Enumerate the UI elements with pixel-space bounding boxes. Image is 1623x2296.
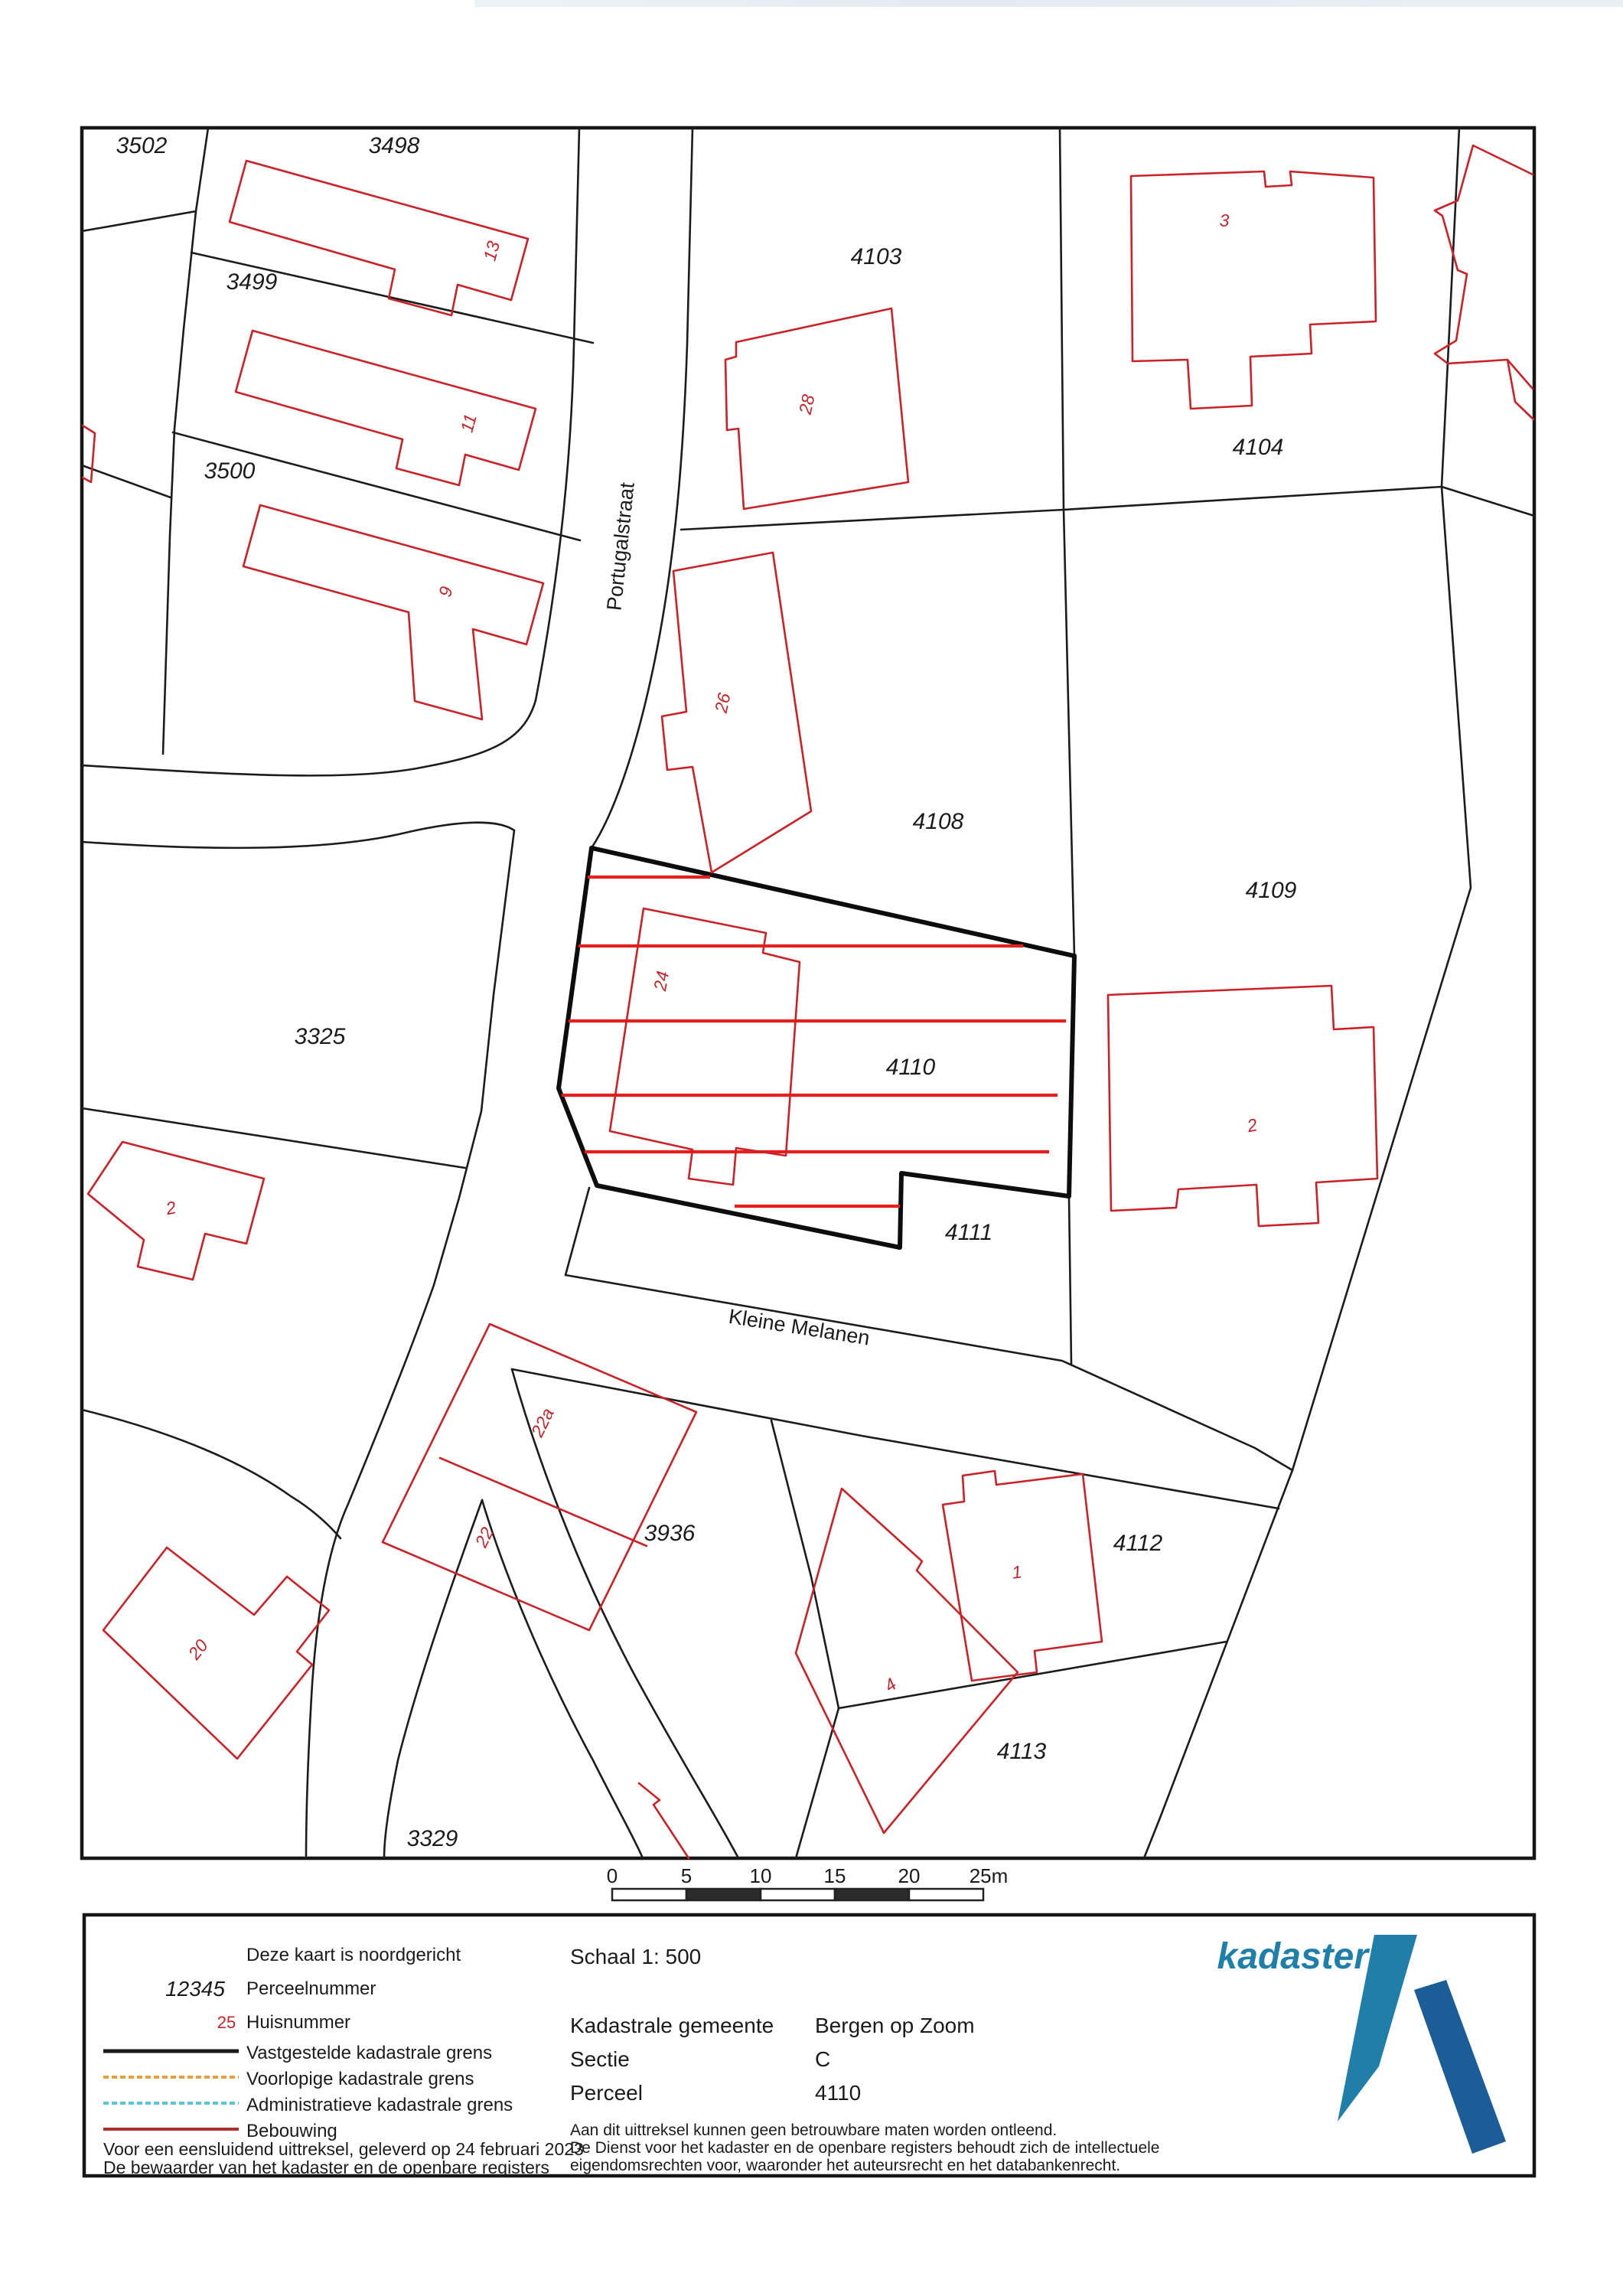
boundary-line [1144, 1470, 1292, 1858]
building-outline-22a-22 [383, 1324, 696, 1630]
field-label-perceel: Perceel [570, 2081, 643, 2105]
footer-line-2: De bewaarder van het kadaster en de open… [103, 2157, 549, 2177]
kadaster-logo: kadaster [1217, 1935, 1506, 2154]
selected-parcel-outline-4110 [559, 848, 1074, 1247]
parcel-label-4109: 4109 [1246, 878, 1297, 903]
house-number-11: 11 [457, 412, 481, 435]
road-edge-portugalstraat-west [536, 128, 579, 700]
legend-house-label: Huisnummer [246, 2012, 350, 2033]
boundary-line [1060, 128, 1064, 510]
field-value-sectie: C [815, 2047, 830, 2071]
extract-details: Schaal 1: 500 Kadastrale gemeente Bergen… [570, 1945, 1159, 2174]
cadastral-map-sheet: 3502 3498 3499 3500 4103 4104 3325 4108 … [0, 0, 1623, 2296]
house-number-2-east: 2 [1244, 1114, 1259, 1136]
scale-tick-0: 0 [607, 1864, 618, 1887]
parcel-label-3500: 3500 [204, 458, 256, 484]
parcel-label-4103: 4103 [851, 244, 902, 269]
boundary-line [173, 432, 580, 540]
scale-bar: 0 5 10 15 20 25m [607, 1864, 1009, 1900]
house-number-24: 24 [650, 970, 673, 993]
boundary-line [681, 510, 1064, 530]
building-outline-28 [725, 308, 908, 509]
house-number-9: 9 [435, 584, 456, 598]
kadaster-extract-page: { "map": { "parcel_labels": [ {"text":"3… [0, 0, 1623, 2296]
building-outline-11 [236, 331, 536, 485]
parcel-label-3498: 3498 [369, 133, 420, 158]
house-number-28: 28 [795, 393, 819, 417]
road-edge [384, 1500, 482, 1858]
kadaster-wordmark: kadaster [1217, 1936, 1370, 1977]
building-outline-irregular [1435, 145, 1533, 419]
house-number-2-west: 2 [163, 1197, 178, 1218]
boundary-line [1064, 510, 1074, 956]
field-value-kadastrale-gemeente: Bergen op Zoom [815, 2014, 975, 2037]
boundary-line [839, 1642, 1227, 1708]
house-number-4: 4 [881, 1674, 900, 1696]
scale-tick-10: 10 [750, 1864, 772, 1887]
road-edge [482, 1500, 643, 1858]
scale-segment [761, 1889, 835, 1900]
boundary-line [82, 211, 196, 231]
boundary-line [565, 1188, 589, 1275]
parcel-label-4112: 4112 [1113, 1531, 1163, 1556]
boundary-line [82, 1410, 341, 1538]
field-label-kadastrale-gemeente: Kadastrale gemeente [570, 2014, 774, 2037]
building-outline-3 [1131, 171, 1376, 409]
building-outline-24 [610, 908, 800, 1185]
boundary-line [82, 465, 171, 497]
parcel-label-3502: 3502 [116, 133, 168, 158]
building-outline-9 [243, 505, 543, 719]
map-labels: 3502 3498 3499 3500 4103 4104 3325 4108 … [116, 133, 1297, 1851]
road-edge-north [82, 700, 536, 775]
parcel-label-4110: 4110 [886, 1055, 936, 1080]
legend-line-building-label: Bebouwing [246, 2121, 337, 2141]
house-number-13: 13 [479, 239, 504, 263]
scale-segment [909, 1889, 983, 1900]
boundary-line [1442, 487, 1534, 516]
road-edge-portugalstraat-east [592, 128, 693, 848]
scale-tick-25m: 25m [970, 1864, 1009, 1887]
boundary-line [1069, 1196, 1071, 1364]
map-frame [82, 128, 1534, 1858]
parcel-label-3325: 3325 [295, 1024, 346, 1049]
parcel-label-3499: 3499 [227, 269, 278, 295]
disclaimer-line-3: eigendomsrechten voor, waaronder het aut… [570, 2157, 1120, 2174]
house-number-1: 1 [1011, 1561, 1023, 1583]
parcel-label-4113: 4113 [997, 1739, 1047, 1764]
scale-segment [686, 1889, 761, 1900]
boundary-line [1442, 128, 1459, 487]
boundary-line [1064, 487, 1442, 510]
building-outline-2-east [1108, 986, 1377, 1226]
scale-segment [612, 1889, 686, 1900]
legend: Deze kaart is noordgericht 12345 Perceel… [103, 1945, 584, 2177]
schaal-text: Schaal 1: 500 [570, 1945, 701, 1968]
field-label-sectie: Sectie [570, 2047, 630, 2071]
disclaimer-line-2: De Dienst voor het kadaster en de openba… [570, 2139, 1159, 2157]
building-outline-fragment [83, 426, 95, 482]
house-number-3: 3 [1220, 210, 1230, 230]
boundary-line [771, 1420, 839, 1708]
boundary-line [191, 253, 593, 343]
parcel-label-4104: 4104 [1233, 435, 1284, 460]
scale-tick-20: 20 [898, 1864, 921, 1887]
selected-parcel-hatching [562, 877, 1066, 1206]
road-edge-kleine-melanen-south [512, 1369, 1279, 1508]
road-edge-diagonal-west [306, 830, 514, 1858]
parcel-boundaries [82, 128, 1534, 1858]
street-label-portugalstraat: Portugalstraat [602, 481, 638, 612]
legend-line-fixed-label: Vastgestelde kadastrale grens [246, 2043, 492, 2063]
parcel-label-3329: 3329 [407, 1826, 458, 1851]
scale-tick-15: 15 [824, 1864, 846, 1887]
road-edge-kleine-melanen-north [565, 1275, 1292, 1470]
legend-line-administrative-label: Administratieve kadastrale grens [246, 2095, 513, 2115]
disclaimer-line-1: Aan dit uittreksel kunnen geen betrouwba… [570, 2122, 1057, 2139]
house-number-26: 26 [711, 691, 735, 716]
legend-line-preliminary-label: Voorlopige kadastrale grens [246, 2069, 474, 2089]
boundary-line [82, 1108, 465, 1168]
house-number-20: 20 [184, 1636, 212, 1664]
parcel-label-3936: 3936 [644, 1521, 696, 1546]
parcel-label-4108: 4108 [913, 809, 964, 834]
footer-line-1: Voor een eensluidend uittreksel, gelever… [103, 2139, 584, 2159]
house-number-22: 22 [471, 1524, 497, 1551]
legend-parcel-label: Perceelnummer [246, 1978, 376, 1999]
logo-stroke-icon [1414, 1980, 1506, 2154]
legend-parcel-example: 12345 [165, 1977, 225, 2001]
building-outline-26 [662, 553, 811, 872]
building-outline-20 [103, 1548, 329, 1759]
boundary-line [512, 1369, 738, 1858]
field-value-perceel: 4110 [815, 2081, 861, 2105]
scale-segment [835, 1889, 909, 1900]
parcel-label-4111: 4111 [945, 1220, 992, 1245]
boundary-line [1292, 487, 1471, 1470]
building-outline-fragment [639, 1783, 689, 1858]
boundary-line [796, 1708, 839, 1858]
street-label-kleine-melanen: Kleine Melanen [727, 1305, 872, 1350]
road-edge-south [82, 823, 514, 848]
legend-house-example: 25 [217, 2013, 236, 2032]
scale-tick-5: 5 [681, 1864, 692, 1887]
legend-north-note: Deze kaart is noordgericht [246, 1945, 461, 1965]
